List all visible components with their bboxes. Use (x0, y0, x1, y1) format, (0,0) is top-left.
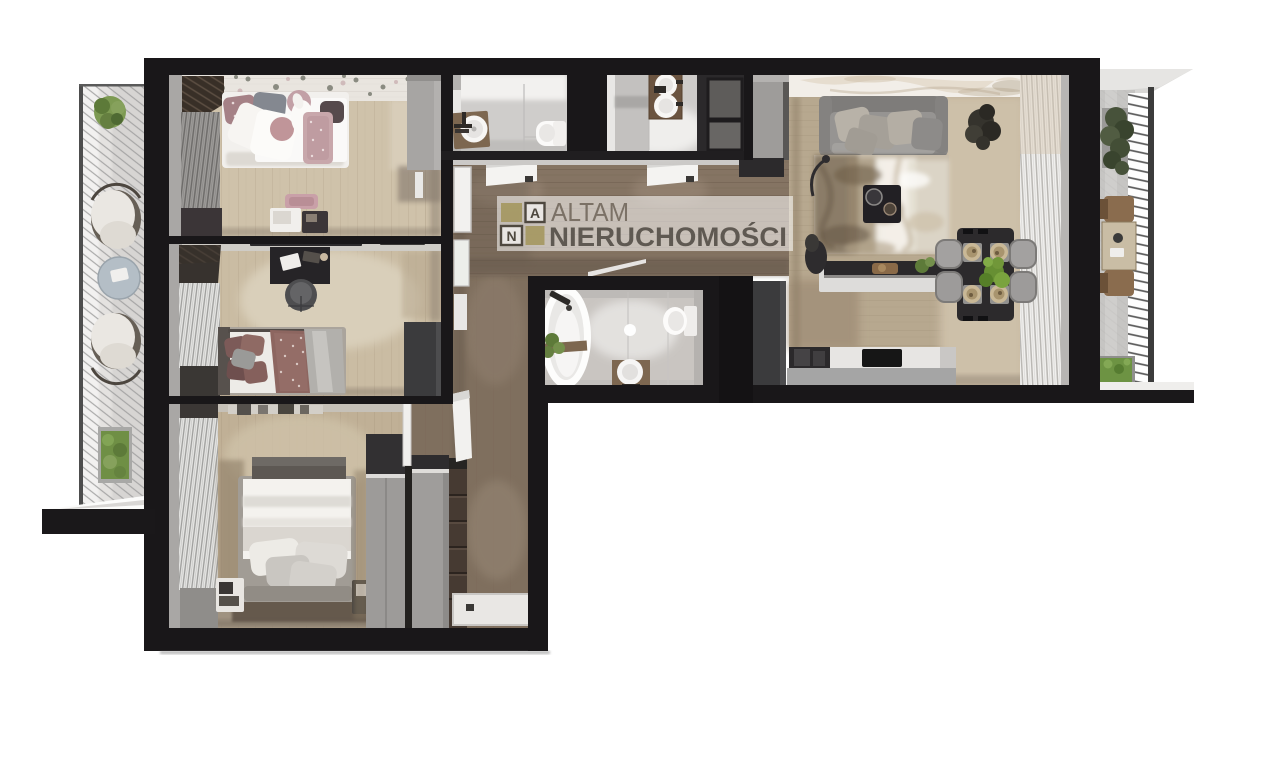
svg-text:NIERUCHOMOŚCI: NIERUCHOMOŚCI (549, 221, 787, 252)
svg-text:N: N (506, 228, 516, 244)
svg-text:A: A (530, 205, 540, 221)
